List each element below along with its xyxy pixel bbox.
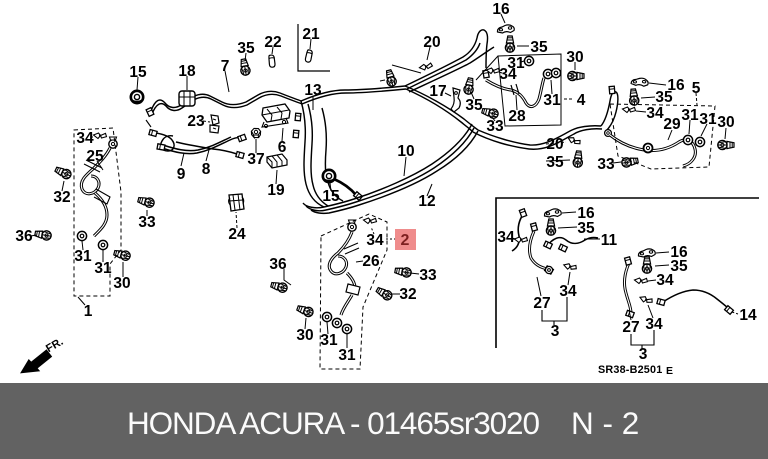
svg-text:17: 17: [429, 83, 446, 100]
svg-text:12: 12: [418, 193, 435, 210]
svg-text:29: 29: [663, 116, 681, 133]
svg-text:34: 34: [499, 66, 517, 83]
svg-text:3: 3: [639, 346, 648, 363]
svg-text:7: 7: [221, 58, 230, 75]
svg-text:31: 31: [320, 332, 338, 349]
svg-text:33: 33: [419, 267, 437, 284]
svg-text:8: 8: [202, 161, 211, 178]
svg-text:27: 27: [622, 319, 639, 336]
svg-text:11: 11: [601, 232, 618, 249]
svg-text:33: 33: [138, 214, 156, 231]
svg-text:35: 35: [237, 40, 255, 57]
svg-text:30: 30: [566, 49, 583, 66]
svg-text:N - 2: N - 2: [571, 405, 639, 441]
svg-text:13: 13: [304, 82, 322, 99]
svg-text:19: 19: [267, 182, 285, 199]
svg-text:32: 32: [399, 286, 416, 303]
svg-text:37: 37: [247, 151, 264, 168]
svg-text:1: 1: [84, 303, 93, 320]
svg-text:6: 6: [278, 139, 287, 156]
svg-text:30: 30: [113, 275, 130, 292]
svg-text:22: 22: [264, 34, 281, 51]
svg-text:35: 35: [465, 97, 483, 114]
svg-text:14: 14: [739, 307, 757, 324]
svg-text:31: 31: [543, 92, 561, 109]
svg-text:31: 31: [681, 107, 699, 124]
svg-text:34: 34: [366, 232, 384, 249]
svg-text:20: 20: [546, 136, 563, 153]
svg-text:25: 25: [86, 148, 104, 165]
svg-text:35: 35: [546, 154, 564, 171]
svg-text:31: 31: [74, 248, 92, 265]
svg-text:SR38-B2501: SR38-B2501: [598, 364, 662, 376]
svg-text:16: 16: [492, 1, 510, 18]
svg-text:36: 36: [269, 256, 287, 273]
svg-text:34: 34: [645, 316, 663, 333]
svg-text:30: 30: [296, 327, 313, 344]
svg-text:34: 34: [656, 272, 674, 289]
svg-text:HONDA ACURA - 01465sr3020: HONDA ACURA - 01465sr3020: [127, 405, 540, 441]
svg-text:36: 36: [15, 228, 33, 245]
svg-text:10: 10: [397, 143, 414, 160]
svg-text:35: 35: [577, 220, 595, 237]
svg-text:34: 34: [646, 105, 664, 122]
svg-text:32: 32: [53, 189, 70, 206]
svg-text:20: 20: [423, 34, 440, 51]
svg-text:27: 27: [533, 295, 550, 312]
svg-text:3: 3: [551, 323, 560, 340]
svg-text:15: 15: [129, 64, 147, 81]
svg-text:34: 34: [76, 130, 94, 147]
svg-text:18: 18: [178, 63, 196, 80]
svg-text:23: 23: [187, 113, 205, 130]
svg-text:33: 33: [597, 156, 615, 173]
svg-text:31: 31: [338, 347, 356, 364]
svg-text:26: 26: [362, 253, 380, 270]
svg-text:35: 35: [530, 39, 548, 56]
svg-text:21: 21: [302, 26, 320, 43]
svg-text:34: 34: [497, 229, 515, 246]
svg-text:5: 5: [692, 80, 701, 97]
svg-text:35: 35: [655, 89, 673, 106]
svg-text:24: 24: [228, 226, 246, 243]
svg-text:34: 34: [559, 283, 577, 300]
svg-text:15: 15: [322, 188, 340, 205]
svg-text:33: 33: [486, 118, 504, 135]
svg-text:4: 4: [577, 92, 586, 109]
svg-text:31: 31: [699, 111, 717, 128]
svg-text:31: 31: [94, 260, 112, 277]
svg-text:30: 30: [717, 114, 734, 131]
svg-text:9: 9: [177, 166, 186, 183]
svg-text:2: 2: [401, 232, 410, 249]
svg-text:28: 28: [508, 108, 526, 125]
svg-text:E: E: [666, 365, 673, 377]
